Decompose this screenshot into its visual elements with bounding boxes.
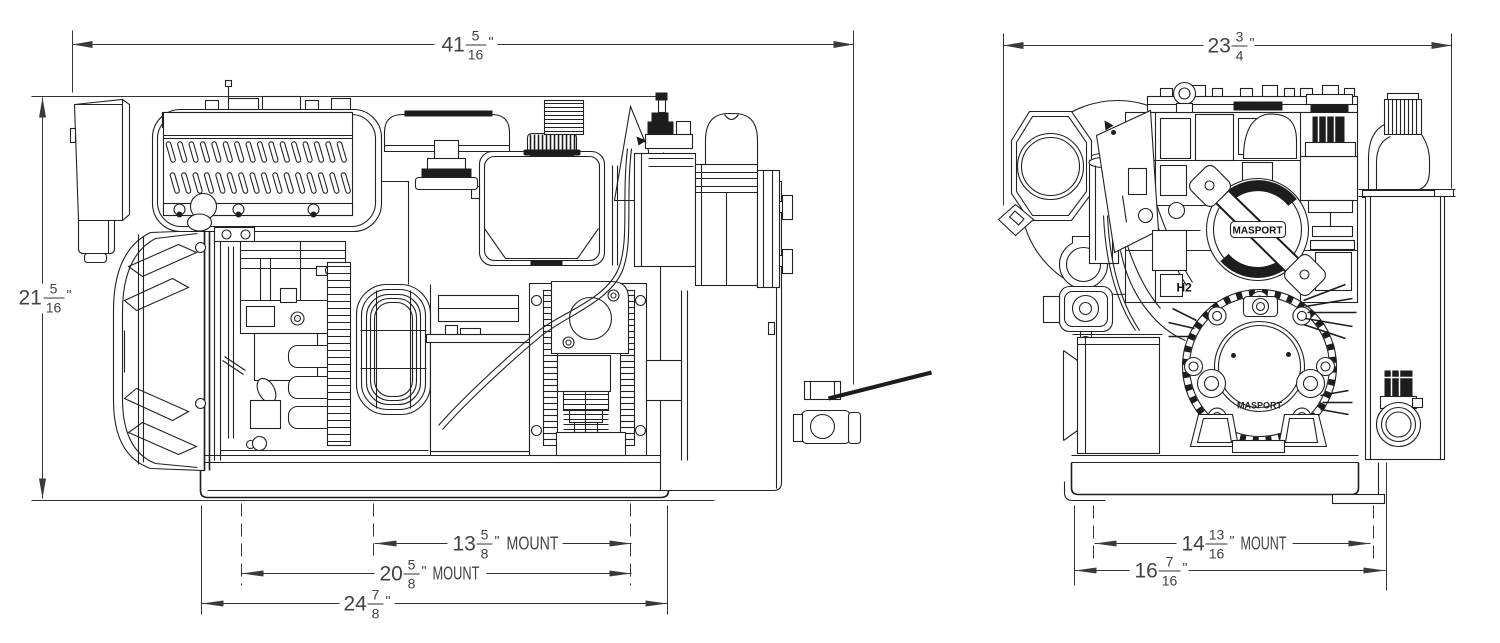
svg-text:4: 4 — [1236, 48, 1244, 64]
svg-text:5: 5 — [472, 28, 480, 44]
svg-text:MOUNT: MOUNT — [433, 564, 480, 584]
svg-text:8: 8 — [372, 606, 380, 622]
svg-text:MOUNT: MOUNT — [1241, 534, 1287, 554]
svg-text:": " — [422, 563, 427, 579]
svg-text:5: 5 — [481, 527, 489, 543]
svg-text:": " — [67, 287, 72, 303]
svg-text:7: 7 — [1166, 554, 1174, 570]
svg-text:16: 16 — [1162, 573, 1178, 589]
svg-text:16: 16 — [46, 300, 62, 316]
svg-text:41: 41 — [442, 34, 465, 57]
svg-text:14: 14 — [1182, 533, 1206, 556]
svg-text:13: 13 — [453, 533, 476, 556]
svg-text:5: 5 — [50, 281, 58, 297]
svg-text:MASPORT: MASPORT — [1237, 401, 1283, 411]
svg-text:16: 16 — [468, 47, 484, 63]
svg-text:3: 3 — [1236, 29, 1244, 45]
svg-text:13: 13 — [1209, 527, 1225, 543]
svg-text:8: 8 — [481, 546, 489, 562]
svg-text:": " — [1250, 35, 1255, 51]
svg-text:8: 8 — [408, 576, 416, 592]
svg-text:MOUNT: MOUNT — [507, 534, 559, 554]
svg-text:MASPORT: MASPORT — [1233, 226, 1283, 237]
svg-text:16: 16 — [1135, 560, 1158, 583]
svg-text:": " — [1230, 533, 1235, 549]
svg-text:H2: H2 — [1177, 281, 1193, 295]
svg-text:16: 16 — [1209, 546, 1225, 562]
svg-text:21: 21 — [19, 287, 42, 310]
svg-text:": " — [1183, 560, 1188, 576]
svg-text:": " — [489, 34, 494, 50]
svg-text:24: 24 — [344, 593, 368, 616]
svg-text:20: 20 — [380, 563, 403, 586]
svg-text:": " — [495, 533, 500, 549]
svg-text:7: 7 — [372, 587, 380, 603]
svg-text:5: 5 — [408, 557, 416, 573]
svg-text:": " — [386, 593, 391, 609]
svg-text:23: 23 — [1208, 35, 1231, 58]
